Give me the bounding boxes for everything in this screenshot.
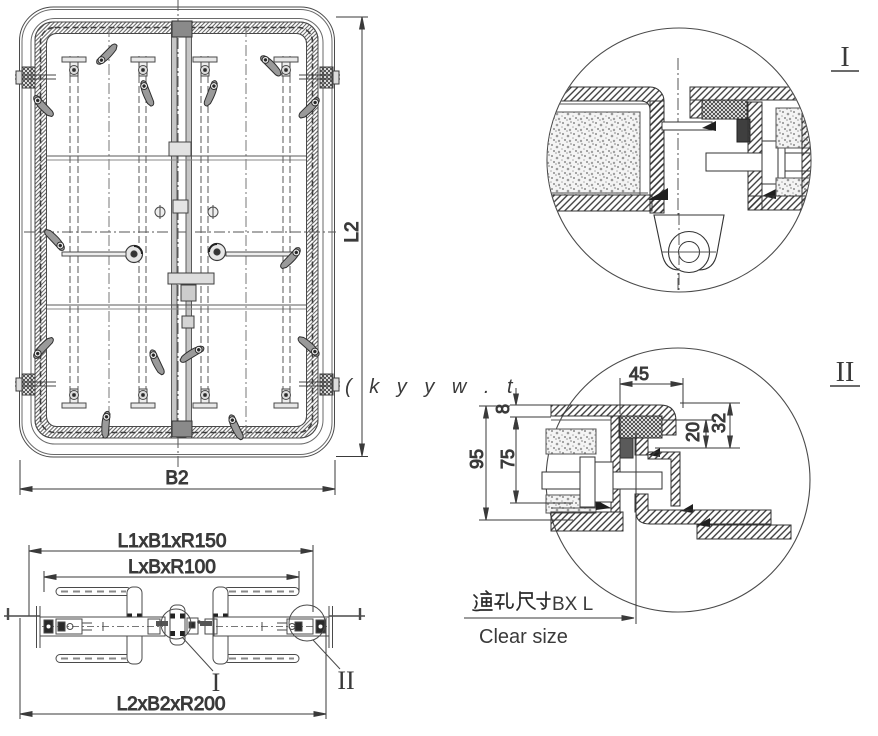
svg-text:II: II (836, 357, 855, 388)
svg-text:B2: B2 (165, 468, 188, 489)
svg-text:II: II (337, 666, 354, 695)
svg-text:LxBxR100: LxBxR100 (128, 557, 216, 578)
svg-text:45: 45 (629, 364, 649, 384)
svg-text:BX L: BX L (552, 594, 593, 615)
svg-text:95: 95 (467, 449, 487, 469)
svg-text:L2xB2xR200: L2xB2xR200 (117, 694, 226, 715)
svg-text:8: 8 (493, 404, 513, 414)
svg-text:I: I (212, 668, 221, 697)
svg-text:75: 75 (498, 449, 518, 469)
svg-text:I: I (840, 42, 849, 73)
svg-text:Clear size: Clear size (479, 626, 568, 648)
svg-text:L2: L2 (342, 221, 363, 242)
svg-text:( k y y w . t: ( k y y w . t (345, 376, 519, 398)
svg-text:20: 20 (683, 422, 703, 442)
svg-text:32: 32 (709, 413, 729, 433)
svg-text:L1xB1xR150: L1xB1xR150 (118, 531, 227, 552)
